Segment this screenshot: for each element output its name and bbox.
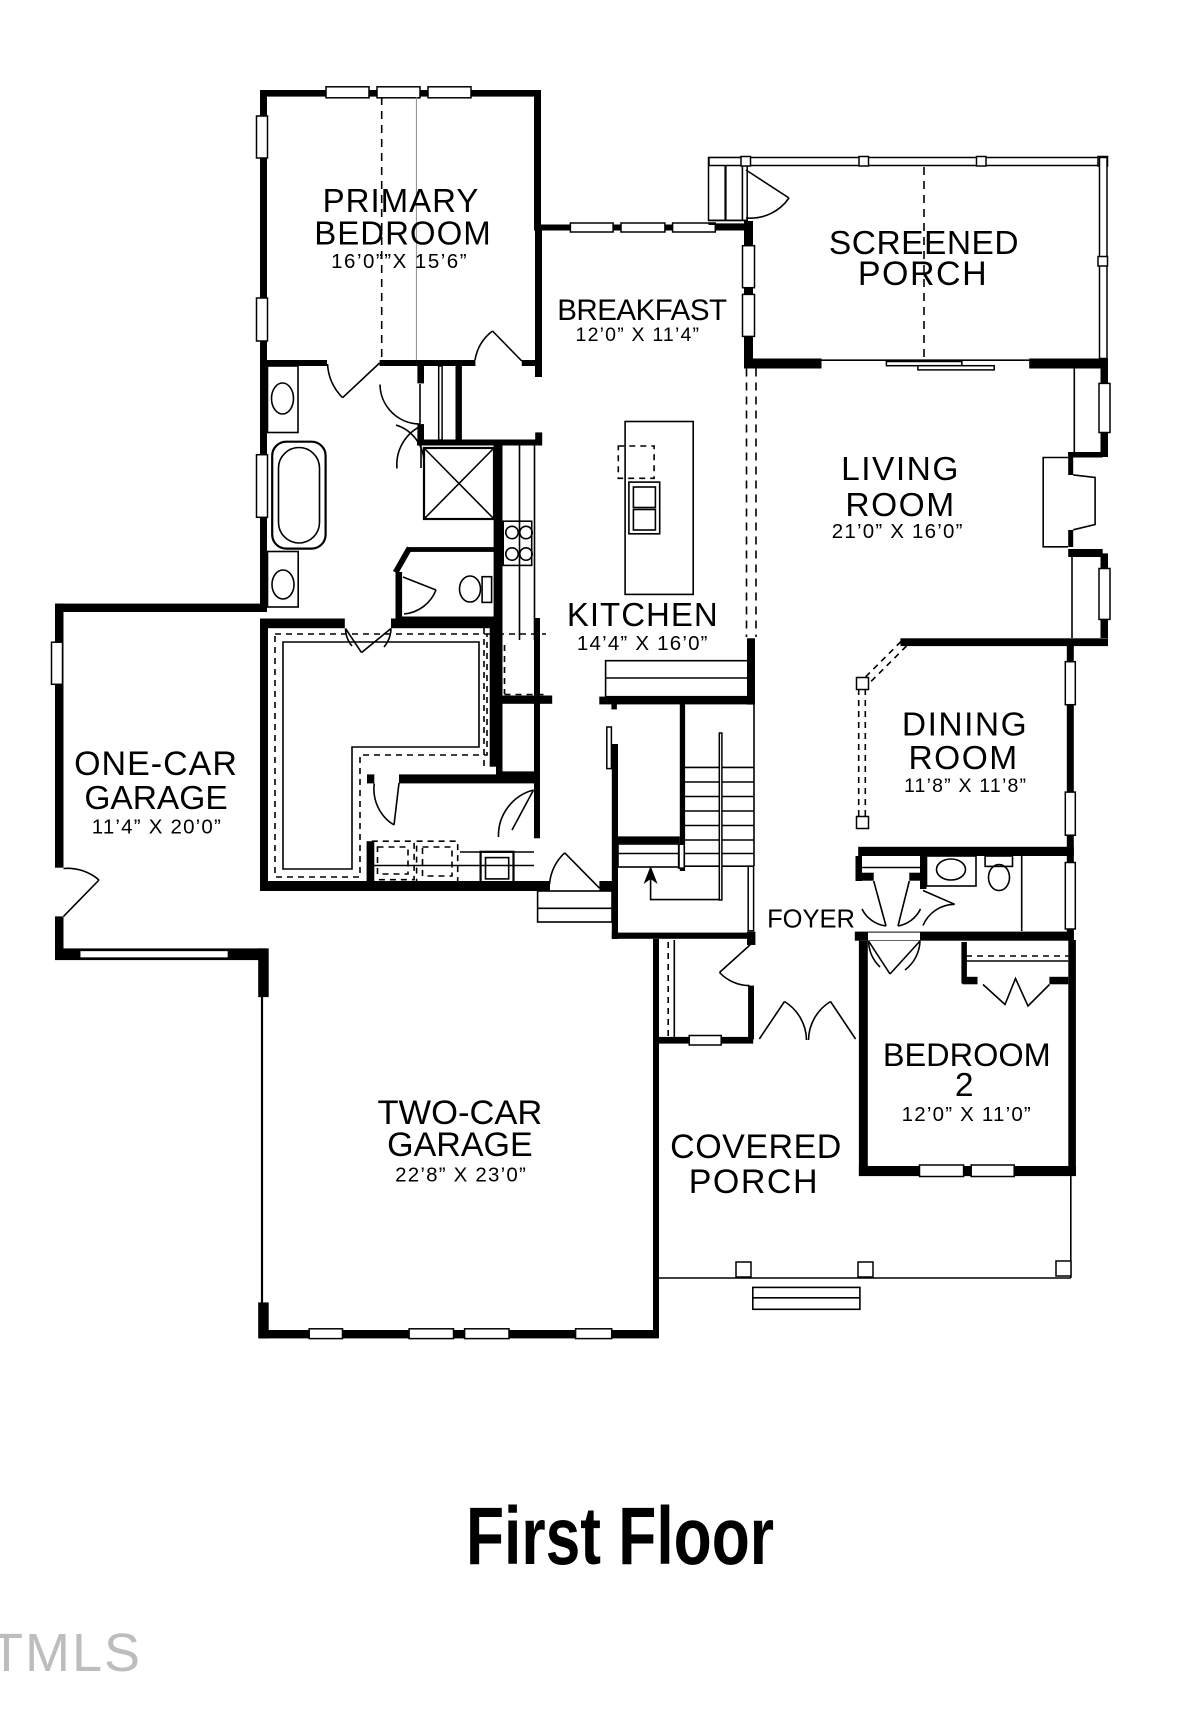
svg-text:14’4” X 16’0”: 14’4” X 16’0” xyxy=(577,632,709,655)
svg-text:22’8” X 23’0”: 22’8” X 23’0” xyxy=(395,1164,527,1187)
svg-text:COVERED: COVERED xyxy=(670,1128,842,1166)
svg-text:12’0” X 11’0”: 12’0” X 11’0” xyxy=(902,1103,1032,1126)
svg-text:PORCH: PORCH xyxy=(858,255,988,293)
svg-text:GARAGE: GARAGE xyxy=(84,780,227,817)
svg-text:12’0” X 11’4”: 12’0” X 11’4” xyxy=(576,324,701,346)
svg-text:BREAKFAST: BREAKFAST xyxy=(557,294,727,327)
svg-text:First Floor: First Floor xyxy=(466,1491,774,1582)
svg-text:TMLS: TMLS xyxy=(0,1623,142,1683)
svg-text:PORCH: PORCH xyxy=(689,1163,819,1201)
svg-text:LIVING: LIVING xyxy=(841,451,960,488)
svg-text:BEDROOM: BEDROOM xyxy=(314,215,492,252)
svg-text:ONE-CAR: ONE-CAR xyxy=(74,745,238,783)
svg-text:11’4” X 20’0”: 11’4” X 20’0” xyxy=(92,816,222,839)
svg-text:2: 2 xyxy=(955,1067,975,1104)
svg-text:DINING: DINING xyxy=(902,707,1028,744)
svg-text:ROOM: ROOM xyxy=(845,487,955,524)
svg-text:ROOM: ROOM xyxy=(908,740,1018,777)
svg-text:FOYER: FOYER xyxy=(767,906,855,934)
svg-text:GARAGE: GARAGE xyxy=(387,1126,532,1164)
svg-text:11’8” X 11’8”: 11’8” X 11’8” xyxy=(904,775,1027,797)
svg-text:21’0” X 16’0”: 21’0” X 16’0” xyxy=(832,520,964,543)
svg-text:KITCHEN: KITCHEN xyxy=(567,596,719,633)
svg-text:PRIMARY: PRIMARY xyxy=(323,182,480,219)
svg-text:16’0””X 15’6”: 16’0””X 15’6” xyxy=(331,250,468,273)
